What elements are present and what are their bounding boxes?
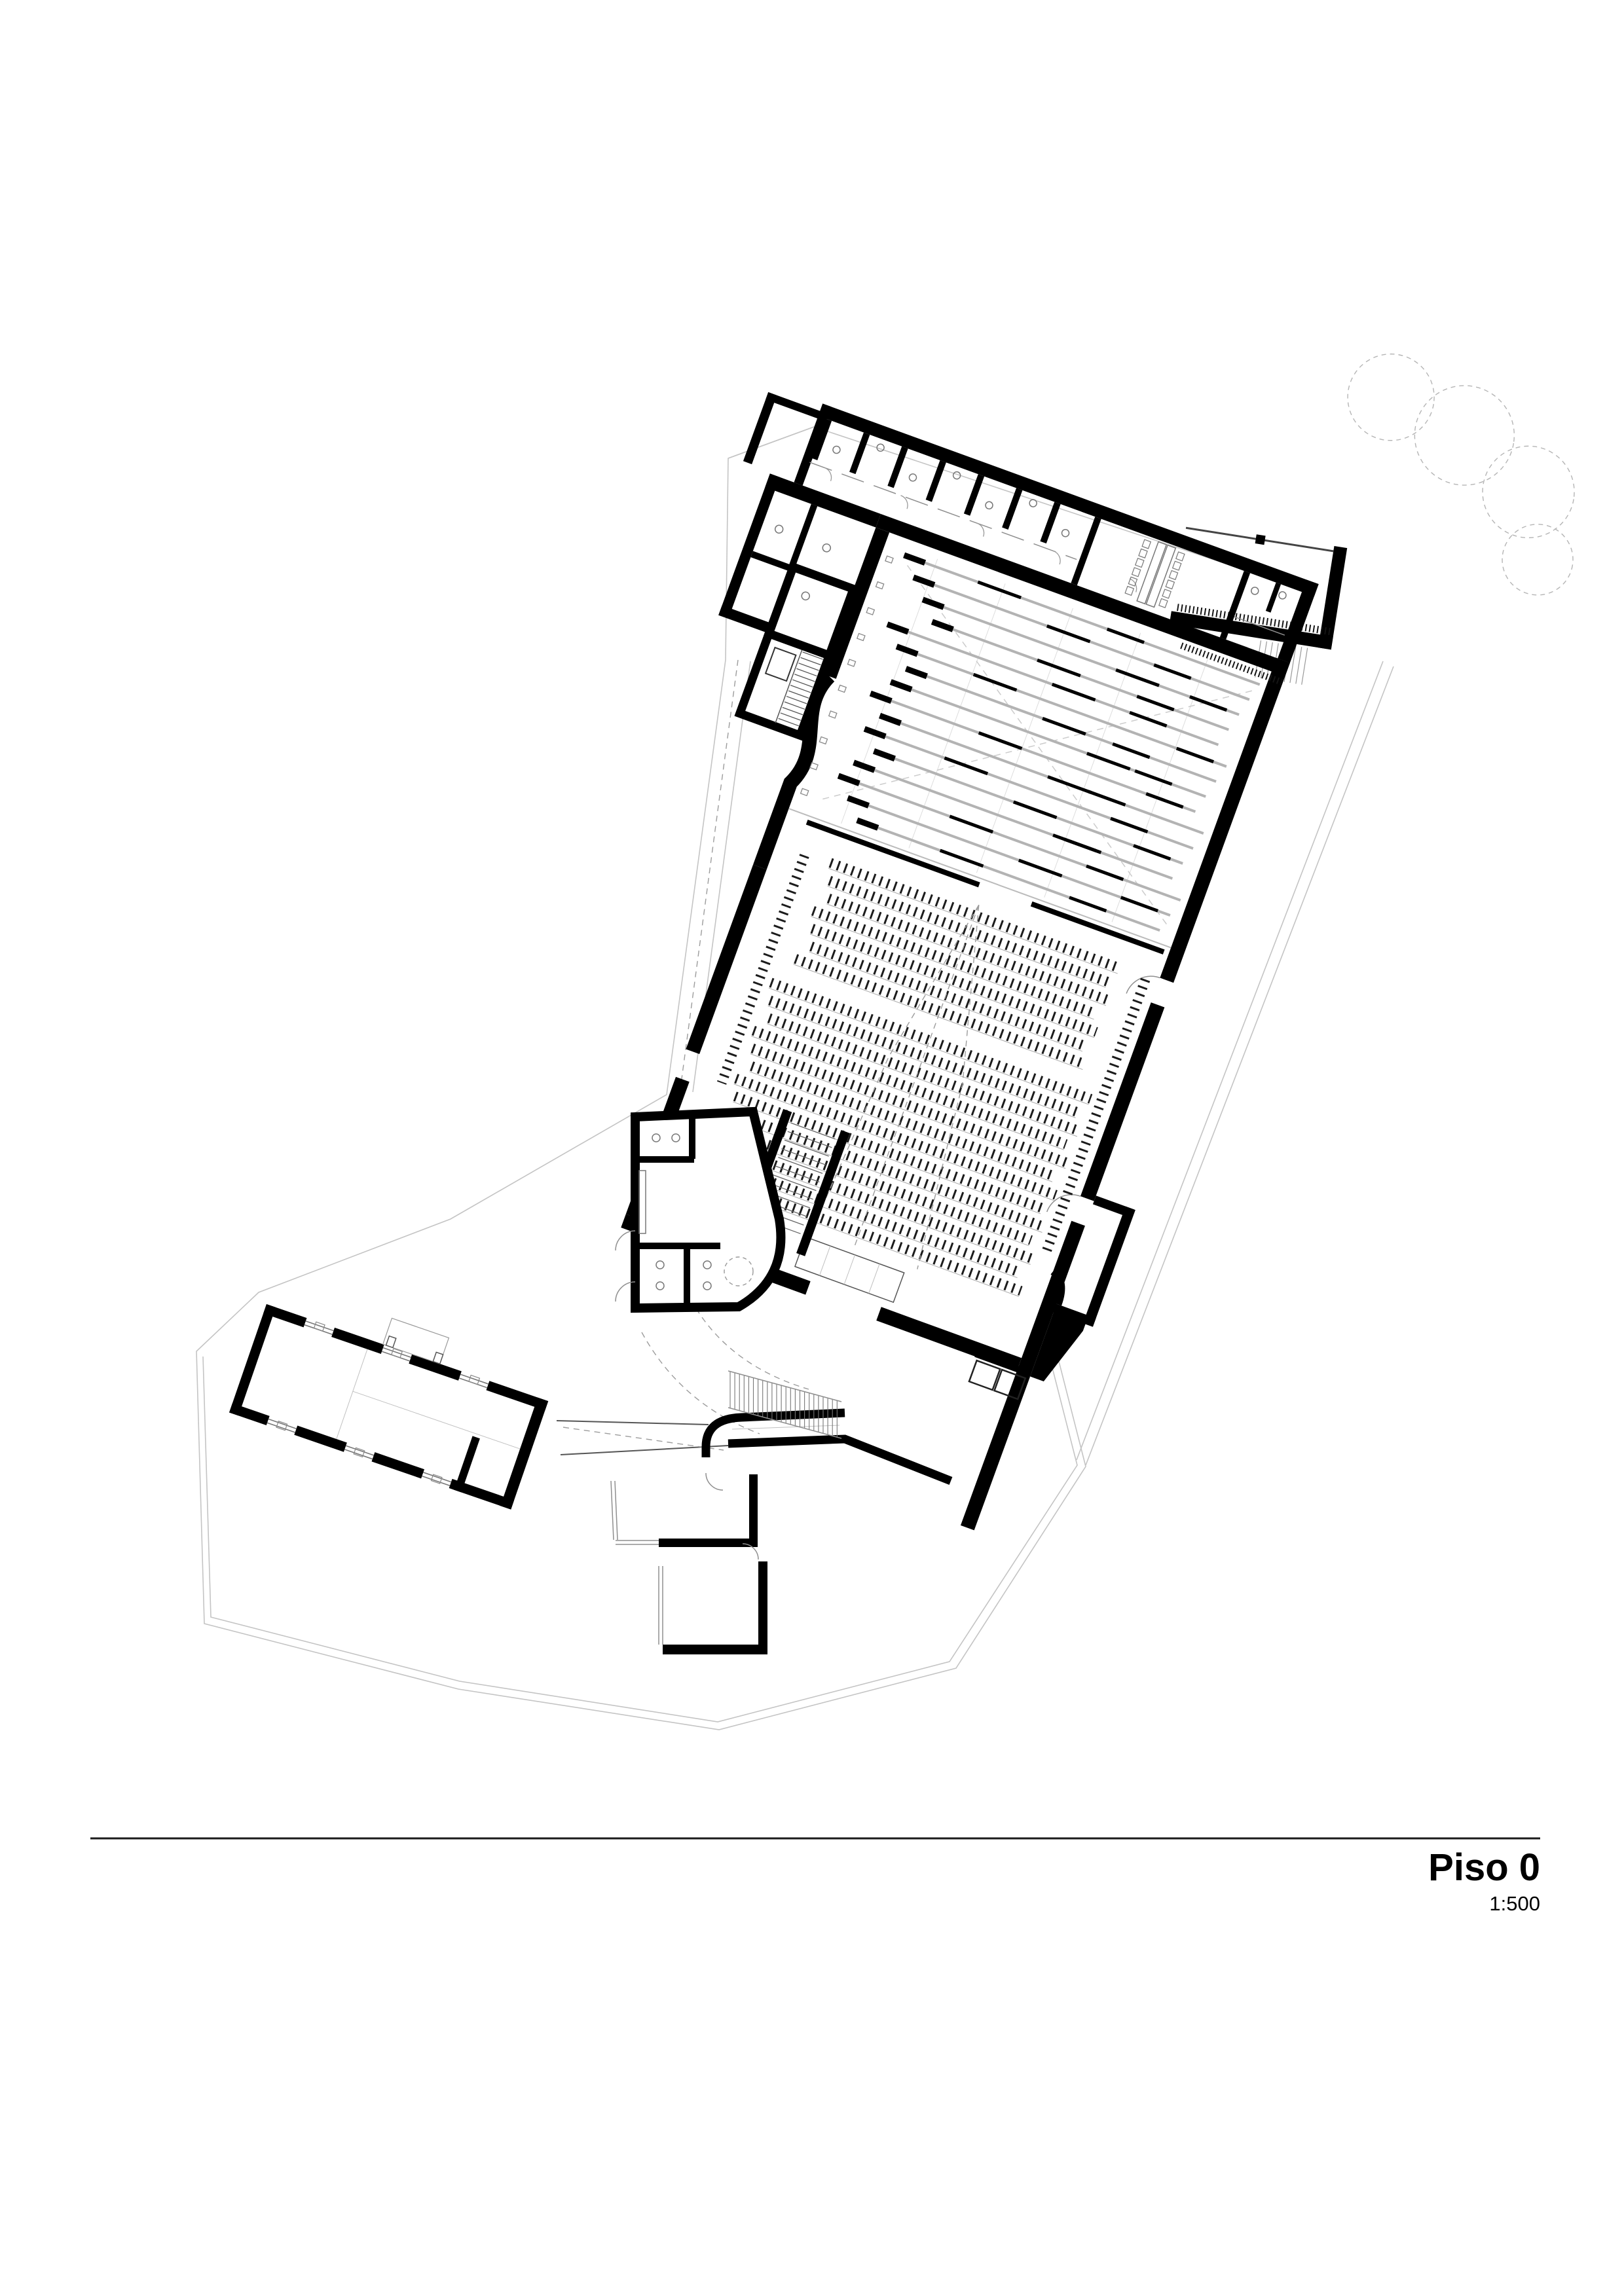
window-line <box>268 1419 297 1429</box>
sheet-title: Piso 0 <box>1428 1846 1540 1889</box>
wc-partition-v2 <box>684 1247 690 1305</box>
fly-line-counterweight <box>1086 866 1123 880</box>
wc-partition <box>1040 502 1060 544</box>
patio-wall-right <box>758 1561 767 1653</box>
annex-glazing-pier <box>1255 534 1266 545</box>
wall-clamp-icon <box>857 634 865 641</box>
wall-clamp-icon <box>876 582 884 589</box>
seat-row-guide <box>768 1006 1076 1118</box>
sw-interior-line-v <box>337 1349 367 1439</box>
title-block: Piso 0 1:500 <box>90 1838 1540 1915</box>
patio-wall-bottom <box>663 1645 767 1654</box>
hall-right-wall-b <box>1080 1002 1164 1201</box>
sw-top-seg <box>409 1355 462 1381</box>
window-mullion <box>354 1448 364 1457</box>
fly-line-counterweight <box>1130 712 1166 726</box>
wall-clamp-icon <box>819 737 827 744</box>
terrace-step <box>1302 648 1308 685</box>
wc-partition-v1 <box>689 1114 695 1159</box>
tree-icon <box>1407 378 1521 492</box>
wc-partition <box>1002 488 1022 530</box>
window-mullion <box>314 1322 325 1331</box>
drawing-sheet: Piso 0 1:500 <box>0 0 1624 2296</box>
fly-line-counterweight <box>1088 792 1125 805</box>
chair-icon <box>1166 580 1174 589</box>
wc-partition-h2 <box>635 1243 720 1249</box>
sink-icon <box>1278 591 1287 600</box>
sw-left-end-wall <box>229 1304 276 1415</box>
seat-row-guide <box>828 886 1106 987</box>
chair-icon <box>1162 589 1171 598</box>
window-line <box>267 1423 295 1432</box>
fly-line-tip <box>913 577 934 585</box>
wall-clamp-icon <box>810 763 818 770</box>
sw-top-seg <box>331 1328 384 1354</box>
site-boundary-outer <box>196 427 1086 1730</box>
front-platform-line <box>844 1255 855 1285</box>
door-arc-icon <box>1050 551 1063 565</box>
main-hall-group <box>426 385 1357 1545</box>
corridor-wall-lower <box>728 1439 951 1481</box>
meeting-table-a <box>1137 542 1166 604</box>
fly-line-tip <box>906 668 927 676</box>
stair-step <box>788 1131 832 1148</box>
fly-line-counterweight <box>1107 629 1144 643</box>
toilet-icon <box>832 445 841 454</box>
fly-line-tip <box>880 716 901 723</box>
sw-wing-walls <box>229 1304 548 1510</box>
fly-line-tip <box>854 763 875 771</box>
fly-line-counterweight <box>1069 898 1106 911</box>
fly-line-counterweight <box>1146 793 1183 807</box>
wc-partition-h1 <box>635 1156 694 1163</box>
sw-porch-column <box>433 1352 443 1364</box>
chair-icon <box>1169 571 1177 580</box>
fly-line <box>880 716 1204 833</box>
fly-line-counterweight <box>950 816 993 832</box>
fly-line-counterweight <box>1134 846 1170 860</box>
courtyard-wall-bottom <box>659 1539 758 1547</box>
hall-right-wall-a <box>1160 658 1290 983</box>
window-line <box>344 1449 373 1459</box>
sw-wing-group <box>229 1278 557 1509</box>
fly-line-counterweight <box>979 733 1022 748</box>
chair-icon <box>1132 568 1141 577</box>
fly-line-counterweight <box>1177 748 1213 762</box>
window-line <box>460 1374 489 1384</box>
window-line <box>423 1472 451 1482</box>
sw-interior-line-h <box>353 1391 520 1449</box>
fly-line-counterweight <box>1052 684 1096 700</box>
window-line <box>346 1446 374 1455</box>
wall-clamp-icon <box>866 608 874 615</box>
chair-icon <box>1139 549 1147 558</box>
fly-line-counterweight <box>1064 839 1101 853</box>
wc-cluster-outer-walls <box>635 1112 781 1308</box>
proscenium-line <box>789 809 1172 947</box>
fly-line-counterweight <box>1154 665 1190 679</box>
door-arc-icon <box>897 496 911 509</box>
courtyard-wall-right <box>749 1474 758 1542</box>
site-boundary-inner <box>203 1350 1077 1722</box>
toilet-icon <box>952 471 961 480</box>
fly-line-counterweight <box>1190 697 1227 710</box>
seat-bank-left <box>722 856 805 1084</box>
sw-right-end-wall <box>500 1398 548 1510</box>
seat-row-guide <box>826 904 1106 1006</box>
terrace-step <box>1296 647 1302 683</box>
tree-icon <box>1497 519 1578 600</box>
wc-partition <box>849 433 870 475</box>
chair-icon <box>1176 552 1185 561</box>
vestibule-wall-a <box>557 1421 709 1425</box>
fly-line-tip <box>904 555 925 563</box>
door-arc-icon <box>821 467 835 481</box>
fly-line-counterweight <box>1043 718 1086 734</box>
wing-top-wall <box>818 403 1318 596</box>
bump-room-right-wall <box>1083 1207 1135 1327</box>
chair-icon <box>1159 598 1168 608</box>
fly-line-tip <box>864 729 885 737</box>
fly-line-tip <box>857 820 878 828</box>
chair-icon <box>1125 587 1134 596</box>
fly-line-tip <box>887 625 908 632</box>
wall-clamp-icon <box>801 788 809 795</box>
wall-clamp-icon <box>885 556 893 563</box>
wall-clamp-icon <box>838 685 846 693</box>
window-mullion <box>431 1474 441 1484</box>
window-mullion <box>469 1376 479 1385</box>
courtyard-window-l2 <box>615 1481 618 1540</box>
entrance-courtyard <box>557 1371 951 1654</box>
stair-step <box>778 1157 822 1174</box>
fly-line-tip <box>923 600 944 608</box>
wall-clamp-icon <box>829 711 837 718</box>
annex-right-wall <box>1318 546 1347 649</box>
fly-line-counterweight <box>974 674 1017 690</box>
toilet-icon <box>984 501 993 510</box>
wc-cluster <box>616 1112 781 1308</box>
sw-bottom-seg <box>294 1425 347 1451</box>
sw-porch-column <box>386 1336 396 1348</box>
fly-line-counterweight <box>1037 660 1080 676</box>
sheet-scale: 1:500 <box>1489 1892 1540 1915</box>
vestibule-dashed <box>563 1427 724 1450</box>
inner-stair-wall-right <box>796 1130 850 1256</box>
door-arc-icon <box>974 523 987 537</box>
fly-line-counterweight <box>1087 754 1130 769</box>
tree-icons <box>1321 348 1601 600</box>
lobby-dashed-arc-a <box>691 1300 809 1389</box>
meeting-table-b <box>1146 545 1175 608</box>
chair-icon <box>1135 558 1144 568</box>
toilet-icon <box>1061 528 1070 538</box>
fly-line-counterweight <box>1113 744 1149 757</box>
tree-icon <box>1476 439 1581 544</box>
fly-line-counterweight <box>978 582 1021 598</box>
fly-line-tip <box>848 798 869 806</box>
window-line <box>306 1321 334 1331</box>
fly-line-counterweight <box>1137 697 1173 710</box>
fly-line <box>854 763 1173 879</box>
front-platform-line <box>869 1264 879 1293</box>
site-edge-right-b <box>1077 661 1383 1460</box>
front-platform-line <box>820 1246 830 1275</box>
wing-far-left-cell-side <box>743 392 777 464</box>
wall-clamp-icon <box>847 659 855 666</box>
wc-right-partition <box>1266 583 1281 613</box>
chair-icon <box>1142 539 1151 549</box>
fly-line-tip <box>891 682 912 690</box>
meeting-room-wall-left <box>1071 517 1101 585</box>
fly-line-counterweight <box>940 850 984 866</box>
toilet-icon <box>774 524 784 534</box>
chair-icon <box>1173 561 1181 570</box>
meeting-chair-icons <box>1125 539 1185 608</box>
seat-row-guide <box>809 952 1082 1051</box>
window-mullion <box>276 1421 287 1430</box>
toilet-icon <box>1029 499 1038 508</box>
entry-stair-rail-top <box>728 1371 841 1402</box>
toilet-icon <box>876 443 885 452</box>
fly-line-counterweight <box>1019 860 1062 876</box>
fly-line-counterweight <box>944 758 987 774</box>
tree-icon <box>1342 348 1441 446</box>
door-arc-icon <box>1126 969 1160 1002</box>
wc-partition <box>926 460 946 502</box>
tower-partition-v <box>789 504 818 568</box>
window-line <box>422 1476 450 1486</box>
corridor-wall-upper <box>706 1413 845 1457</box>
site-edge-left-dashed <box>680 660 738 1093</box>
fly-line-tip <box>874 751 895 759</box>
sw-bottom-seg <box>371 1452 424 1478</box>
toilet-icon <box>908 473 917 482</box>
door-arc-icon <box>706 1473 723 1490</box>
floor-plan-canvas: Piso 0 1:500 <box>0 0 1624 2296</box>
fly-line-counterweight <box>1014 802 1057 818</box>
hall-left-wall-b <box>686 865 766 1054</box>
courtyard-window-l <box>611 1481 614 1540</box>
fly-line-counterweight <box>1111 818 1147 832</box>
fly-line-counterweight <box>1047 626 1090 642</box>
fly-line-tip <box>838 776 859 784</box>
fly-line-tip <box>896 646 917 654</box>
toilet-icon <box>1250 586 1259 595</box>
toilet-icon <box>822 543 832 553</box>
hall-top-wall <box>876 514 1289 676</box>
fly-line-tip <box>932 622 953 630</box>
